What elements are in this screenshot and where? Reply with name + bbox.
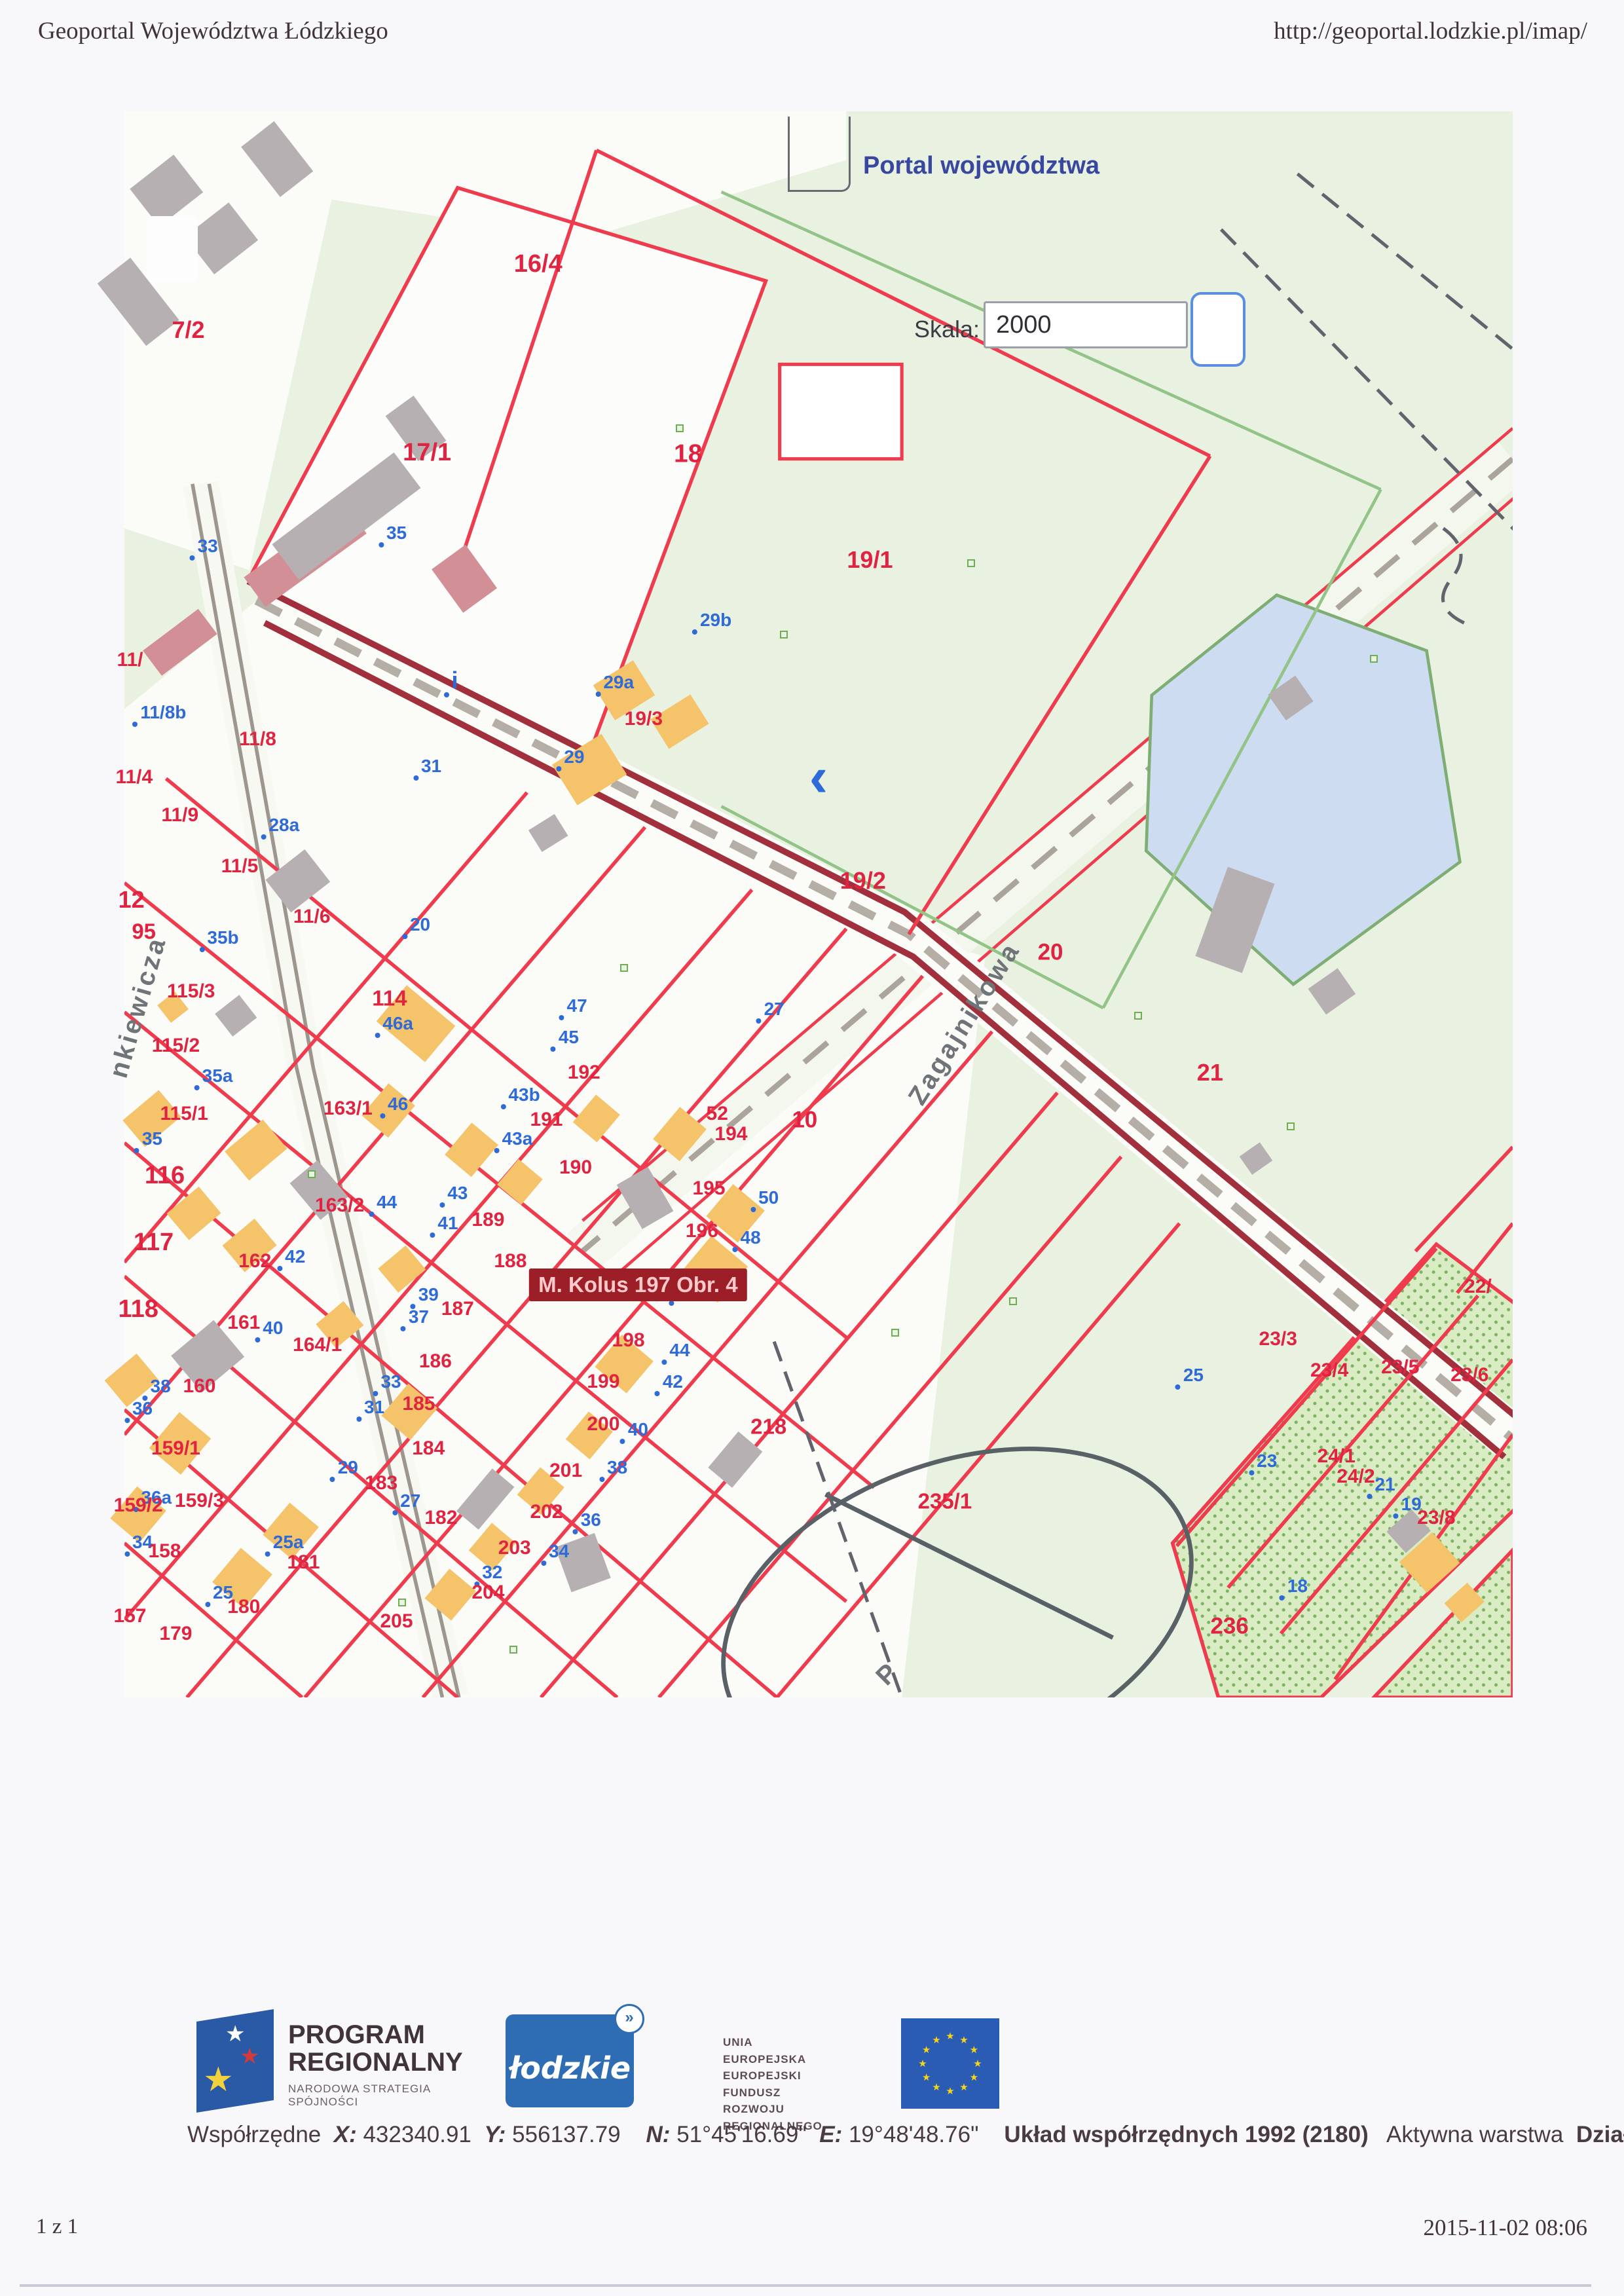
- parcel-number-label: 159/2: [114, 1496, 163, 1515]
- program-regionalny-logo-icon: ★ ★ ★: [196, 2009, 274, 2113]
- eu-star-icon: ★: [922, 2044, 931, 2056]
- address-number-label: 38: [151, 1377, 171, 1396]
- coords-label: Współrzędne: [187, 2122, 321, 2147]
- active-layer-label: Aktywna warstwa: [1386, 2122, 1563, 2147]
- parcel-number-label: 203: [498, 1538, 531, 1558]
- page-title: Geoportal Województwa Łódzkiego: [38, 17, 388, 45]
- green-marker-icon: [509, 1646, 517, 1654]
- parcel-number-label: 11/: [117, 650, 143, 670]
- program-regionalny-text: PROGRAM REGIONALNY NARODOWA STRATEGIA SP…: [288, 2021, 463, 2109]
- parcel-number-label: 16/4: [514, 251, 563, 276]
- parcel-number-label: 164/1: [293, 1335, 342, 1355]
- eu-star-icon: ★: [959, 2081, 968, 2093]
- address-number-label: 25a: [273, 1533, 304, 1551]
- star-icon: ★: [240, 2043, 259, 2069]
- parcel-number-label: 24/1: [1318, 1447, 1356, 1466]
- green-marker-icon: [1009, 1297, 1017, 1305]
- eu-star-icon: ★: [932, 2081, 940, 2093]
- address-number-label: 42: [663, 1373, 683, 1391]
- parcel-number-label: 12: [119, 888, 145, 912]
- green-marker-icon: [967, 559, 975, 567]
- address-number-label: 40: [628, 1420, 648, 1439]
- address-number-label: 31: [421, 757, 441, 775]
- address-number-label: 32: [482, 1563, 502, 1582]
- parcel-number-label: 196: [686, 1221, 718, 1241]
- address-number-label: 40: [263, 1319, 283, 1337]
- parcel-number-label: 190: [559, 1158, 592, 1177]
- y-value: 556137.79: [512, 2122, 620, 2147]
- parcel-number-label: 163/1: [323, 1099, 373, 1119]
- print-datetime: 2015-11-02 08:06: [1424, 2215, 1588, 2241]
- address-number-label: 47: [567, 997, 587, 1015]
- coordinates-bar: Współrzędne X: 432340.91 Y: 556137.79 N:…: [187, 2122, 1624, 2148]
- eu-star-icon: ★: [946, 2030, 954, 2042]
- address-number-label: 33: [198, 537, 218, 555]
- parcel-number-label: 18: [674, 441, 702, 467]
- x-value: 432340.91: [363, 2122, 471, 2147]
- parcel-number-label: 117: [134, 1230, 174, 1255]
- eu-line1: UNIA EUROPEJSKA: [723, 2034, 822, 2067]
- x-label: X:: [334, 2122, 357, 2147]
- eu-text: UNIA EUROPEJSKA EUROPEJSKI FUNDUSZ ROZWO…: [723, 2034, 822, 2134]
- parcel-number-label: 115/1: [160, 1104, 208, 1124]
- parcel-number-label: 205: [380, 1612, 413, 1631]
- parcel-number-label: 189: [471, 1210, 504, 1230]
- green-marker-icon: [780, 631, 788, 639]
- parcel-number-label: 52: [707, 1104, 728, 1124]
- parcel-number-label: 200: [587, 1415, 619, 1434]
- address-number-label: 29b: [700, 611, 731, 629]
- parcel-number-label: 160: [183, 1377, 215, 1396]
- address-number-label: 35b: [207, 929, 238, 947]
- address-number-label: 29: [564, 748, 584, 766]
- parcel-number-label: 23/8: [1417, 1508, 1455, 1528]
- parcel-number-label: 23/6: [1450, 1365, 1488, 1385]
- parcel-number-label: 183: [365, 1473, 397, 1493]
- program-sub: NARODOWA STRATEGIA SPÓJNOŚCI: [288, 2083, 463, 2109]
- map-canvas[interactable]: 16/47/217/118353319/129bi29a19/3293111/8…: [124, 111, 1513, 1697]
- parcel-number-label: 11/4: [115, 768, 153, 787]
- parcel-number-label: 181: [287, 1553, 320, 1572]
- active-layer-value: Działki: [1576, 2122, 1624, 2147]
- parcel-number-label: 23/5: [1381, 1358, 1419, 1377]
- address-number-label: 36: [132, 1399, 153, 1418]
- green-marker-icon: [308, 1170, 316, 1178]
- address-number-label: 50: [758, 1189, 779, 1207]
- address-number-label: i: [452, 669, 458, 692]
- back-arrow-icon[interactable]: ‹: [809, 745, 828, 810]
- parcel-number-label: 23/4: [1310, 1361, 1348, 1380]
- program-line2: REGIONALNY: [288, 2048, 463, 2076]
- parcel-number-label: 20: [1038, 940, 1063, 963]
- parcel-number-label: 185: [402, 1394, 435, 1414]
- green-marker-icon: [620, 964, 628, 972]
- parcel-number-label: 157: [113, 1606, 146, 1626]
- eu-star-icon: ★: [932, 2034, 940, 2046]
- parcel-number-label: 180: [227, 1597, 260, 1617]
- parcel-number-label: 116: [145, 1163, 185, 1188]
- eu-star-icon: ★: [970, 2044, 978, 2056]
- lodzkie-logo: » łodzkie: [506, 2014, 634, 2107]
- parcel-number-label: 19/1: [847, 548, 893, 572]
- address-number-label: 18: [1287, 1577, 1308, 1595]
- parcel-number-label: 11/6: [293, 907, 331, 927]
- star-icon: ★: [203, 2060, 234, 2100]
- eu-star-icon: ★: [959, 2034, 968, 2046]
- page-edge-shadow: [20, 2284, 1591, 2287]
- program-line1: PROGRAM: [288, 2021, 463, 2048]
- green-marker-icon: [1134, 1012, 1142, 1020]
- n-value: 51°45'16.69": [676, 2122, 807, 2147]
- address-number-label: 48: [741, 1229, 761, 1247]
- parcel-number-label: 202: [530, 1502, 563, 1522]
- parcel-number-label: 235/1: [918, 1490, 972, 1511]
- address-number-label: 42: [285, 1248, 305, 1266]
- address-number-label: 11/8b: [140, 703, 186, 722]
- parcel-number-label: 21: [1197, 1061, 1223, 1084]
- parcel-number-label: 162: [238, 1251, 271, 1271]
- address-number-label: 29a: [603, 673, 634, 692]
- parcel-number-label: 236: [1210, 1615, 1248, 1638]
- address-number-label: 21: [1375, 1475, 1395, 1494]
- address-number-label: 43a: [502, 1130, 533, 1148]
- parcel-number-label: 201: [549, 1461, 582, 1481]
- parcel-number-label: 10: [792, 1109, 817, 1132]
- address-number-label: 20: [410, 916, 430, 934]
- address-number-label: 46a: [382, 1014, 413, 1033]
- portal-overlay-label: Portal województwa: [863, 152, 1099, 180]
- address-number-label: 34: [549, 1542, 569, 1561]
- lodzkie-badge-icon: »: [614, 2004, 644, 2034]
- parcel-number-label: 115/2: [152, 1036, 200, 1056]
- address-number-label: 43: [447, 1184, 468, 1202]
- n-label: N:: [646, 2122, 671, 2147]
- parcel-number-label: 158: [148, 1542, 181, 1561]
- map-graphics: [124, 111, 1513, 1697]
- address-number-label: 27: [764, 1000, 784, 1018]
- address-number-label: 44: [669, 1341, 690, 1360]
- parcel-number-label: 11/5: [221, 857, 259, 876]
- coord-system: Układ współrzędnych 1992 (2180): [1004, 2122, 1368, 2147]
- address-number-label: 38: [607, 1458, 627, 1477]
- parcel-number-label: 114: [372, 987, 407, 1009]
- eu-flag-icon: ★★★★★★★★★★★★: [901, 2018, 999, 2109]
- e-value: 19°48'48.76": [849, 2122, 979, 2147]
- address-number-label: 41: [437, 1214, 458, 1232]
- address-number-label: 35: [142, 1130, 162, 1148]
- scale-input[interactable]: [984, 301, 1188, 348]
- back-tile: [147, 216, 198, 282]
- parcel-number-label: 17/1: [403, 440, 451, 465]
- green-marker-icon: [1370, 655, 1378, 663]
- address-number-label: 29: [338, 1458, 358, 1477]
- parcel-number-label: 19/2: [840, 869, 886, 893]
- address-number-label: 43b: [508, 1086, 540, 1104]
- page-number: 1 z 1: [36, 2215, 78, 2239]
- eu-star-icon: ★: [973, 2058, 982, 2069]
- lodzkie-text: łodzkie: [509, 2050, 631, 2086]
- parcel-number-label: 163/2: [315, 1196, 364, 1215]
- parcel-number-label: 24/2: [1337, 1467, 1375, 1487]
- parcel-number-label: 11/9: [161, 805, 198, 825]
- parcel-number-label: 159/3: [175, 1491, 224, 1511]
- parcel-number-label: 22/: [1464, 1277, 1492, 1297]
- address-number-label: 44: [377, 1193, 397, 1212]
- address-number-label: 31: [364, 1398, 384, 1416]
- print-page: Geoportal Województwa Łódzkiego http://g…: [0, 0, 1624, 2296]
- address-number-label: 27: [400, 1492, 420, 1510]
- parcel-number-label: 195: [692, 1179, 725, 1198]
- green-marker-icon: [676, 424, 684, 432]
- parcel-number-label: 182: [424, 1508, 457, 1528]
- y-label: Y:: [484, 2122, 506, 2147]
- address-number-label: 39: [418, 1286, 439, 1304]
- parcel-number-label: 199: [587, 1372, 619, 1392]
- parcel-number-label: 11/8: [239, 730, 276, 749]
- parcel-number-label: 118: [119, 1297, 158, 1322]
- address-number-label: 23: [1257, 1452, 1277, 1470]
- parcel-number-label: 19/3: [625, 709, 663, 729]
- eu-star-icon: ★: [946, 2085, 954, 2097]
- parcel-number-label: 7/2: [172, 318, 204, 342]
- parcel-number-label: 204: [471, 1583, 504, 1602]
- e-label: E:: [819, 2122, 842, 2147]
- eu-star-icon: ★: [970, 2071, 978, 2083]
- address-number-label: 28a: [268, 816, 299, 834]
- address-number-label: 35a: [202, 1067, 233, 1085]
- parcel-number-label: 194: [714, 1124, 747, 1144]
- green-marker-icon: [1287, 1122, 1295, 1130]
- parcel-number-label: 186: [419, 1352, 452, 1371]
- parcel-number-label: 115/3: [167, 982, 215, 1001]
- address-number-label: 25: [1183, 1366, 1204, 1384]
- parcel-number-label: 188: [494, 1251, 526, 1271]
- search-result-highlight: M. Kolus 197 Obr. 4: [529, 1268, 747, 1301]
- parcel-number-label: 161: [227, 1313, 260, 1333]
- parcel-number-label: 23/3: [1259, 1329, 1297, 1349]
- eu-star-icon: ★: [922, 2071, 931, 2083]
- parcel-number-label: 198: [612, 1331, 645, 1350]
- parcel-number-label: 159/1: [151, 1439, 200, 1458]
- address-number-label: 46: [388, 1095, 408, 1113]
- scale-label: Skala:: [914, 316, 980, 343]
- page-url: http://geoportal.lodzkie.pl/imap/: [1274, 17, 1587, 45]
- parcel-number-label: 218: [750, 1415, 786, 1437]
- green-marker-icon: [398, 1599, 406, 1606]
- parcel-number-label: 179: [159, 1624, 192, 1644]
- scale-apply-button[interactable]: [1190, 292, 1246, 367]
- address-number-label: 45: [559, 1028, 579, 1046]
- address-number-label: 36: [581, 1511, 601, 1529]
- address-number-label: 33: [380, 1373, 401, 1391]
- portal-frame-icon: [788, 117, 851, 192]
- parcel-number-label: 192: [568, 1063, 600, 1083]
- address-number-label: 35: [386, 524, 407, 542]
- parcel-number-label: 184: [412, 1439, 445, 1458]
- parcel-number-label: 191: [530, 1110, 563, 1130]
- green-marker-icon: [891, 1329, 899, 1337]
- parcel-number-label: 187: [441, 1299, 474, 1319]
- address-number-label: 37: [409, 1308, 429, 1326]
- eu-line2: EUROPEJSKI FUNDUSZ: [723, 2067, 822, 2101]
- eu-star-icon: ★: [918, 2058, 927, 2069]
